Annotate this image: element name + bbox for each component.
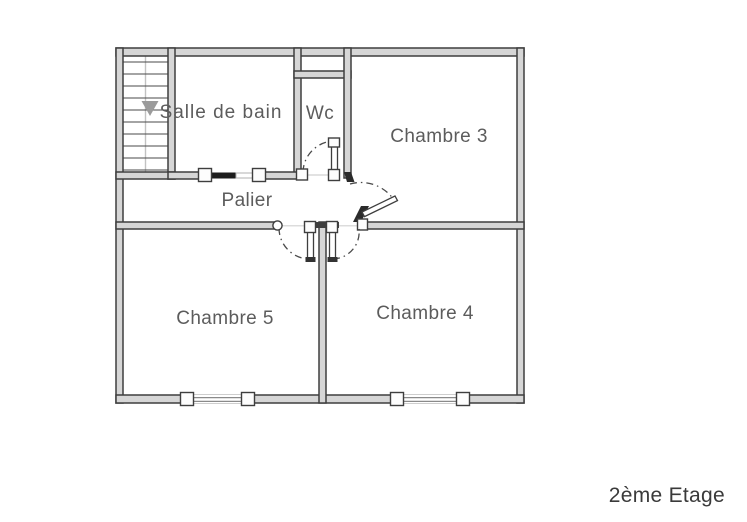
wall-bathroom-bottom-left bbox=[168, 172, 202, 179]
window-jamb bbox=[181, 393, 194, 406]
door-chambre4 bbox=[327, 222, 360, 263]
room-label-palier: Palier bbox=[222, 190, 273, 212]
door-leaf-cap bbox=[306, 257, 316, 262]
wall-stair-bottom bbox=[116, 172, 175, 179]
room-label-chambre-3: Chambre 3 bbox=[390, 126, 488, 148]
door-hinge bbox=[305, 222, 316, 233]
door-leaf-cap bbox=[329, 138, 340, 147]
room-label-wc: Wc bbox=[306, 103, 334, 125]
door-swing-arc bbox=[350, 182, 394, 200]
door-jamb bbox=[199, 169, 212, 182]
wall-palier-chambre4 bbox=[359, 222, 524, 229]
wall-wc-chambre3 bbox=[344, 48, 351, 178]
door-hinge bbox=[329, 170, 340, 181]
wall-end-cap bbox=[344, 172, 355, 182]
window-jamb bbox=[457, 393, 470, 406]
room-label-salle-de-bain: Salle de bain bbox=[160, 102, 283, 124]
stairs-down-arrow-icon bbox=[142, 101, 159, 116]
sliding-door-panel bbox=[211, 173, 236, 179]
wall-end-post bbox=[273, 221, 282, 230]
door-jamb bbox=[297, 169, 308, 180]
room-label-chambre-5: Chambre 5 bbox=[176, 308, 274, 330]
wall-bathroom-wc bbox=[294, 48, 301, 178]
door-swing-arc bbox=[333, 229, 359, 259]
door-jamb bbox=[358, 219, 368, 230]
door-chambre5 bbox=[273, 221, 316, 262]
wall-wc-top bbox=[294, 71, 351, 78]
floor-plan-drawing bbox=[0, 0, 747, 522]
floor-plan: Salle de bain Wc Chambre 3 Palier Chambr… bbox=[0, 0, 747, 522]
door-hinge bbox=[327, 222, 338, 233]
door-leaf bbox=[308, 231, 314, 258]
wall-bathroom-bottom-right bbox=[263, 172, 300, 179]
door-leaf-cap bbox=[328, 257, 338, 262]
window-jamb bbox=[391, 393, 404, 406]
door-leaf bbox=[330, 231, 336, 258]
threshold-lines bbox=[282, 175, 357, 226]
sliding-door-bathroom bbox=[199, 169, 266, 182]
door-jamb bbox=[253, 169, 266, 182]
wall-outer-top bbox=[116, 48, 524, 56]
window-jamb bbox=[242, 393, 255, 406]
sliding-door-opening bbox=[236, 173, 254, 178]
wall-chambre5-chambre4 bbox=[319, 222, 326, 403]
floor-title: 2ème Etage bbox=[609, 484, 725, 508]
door-wc bbox=[297, 138, 340, 181]
room-label-chambre-4: Chambre 4 bbox=[376, 303, 474, 325]
wall-palier-chambre5 bbox=[116, 222, 278, 229]
